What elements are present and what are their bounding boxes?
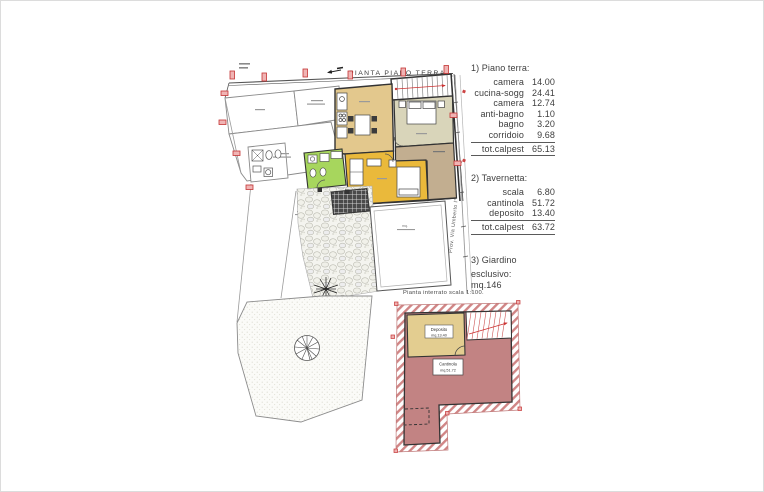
deposito-area: mq.13.40 xyxy=(431,334,447,338)
section-heading: 1) Piano terra: xyxy=(471,63,555,74)
basement-plan: Pianta interrato scala 1:100. Deposito m… xyxy=(391,290,522,453)
area-row: corridoio9.68 xyxy=(471,130,555,141)
terrace: mq. xyxy=(370,201,451,291)
kitchen-living-room xyxy=(335,84,394,154)
cantinola-label-box: Cantinola mq.51.72 xyxy=(433,359,463,375)
giardino-line: esclusivo: xyxy=(471,269,555,280)
tree-icon xyxy=(295,336,320,361)
area-row: deposito13.40 xyxy=(471,208,555,219)
deposito-label-box: Deposito mq.13.40 xyxy=(425,325,453,338)
area-total-row: tot.calpest63.72 xyxy=(471,220,555,235)
street-name-label: Prov. Via Umberto I° xyxy=(448,198,460,253)
area-table-section-tavernetta: 2) Tavernetta: scala6.80 cantinola51.72 … xyxy=(471,173,555,234)
area-row: camera14.00 xyxy=(471,77,555,88)
grate xyxy=(331,189,370,215)
deposito-label: Deposito xyxy=(431,327,448,332)
area-total-row: tot.calpest65.13 xyxy=(471,142,555,157)
basement-stair xyxy=(466,311,512,340)
area-row: cantinola51.72 xyxy=(471,198,555,209)
cobblestone-path xyxy=(297,186,379,298)
basement-title: Pianta interrato scala 1:100. xyxy=(403,290,484,296)
floor-plan-drawing: PIANTA PIANO TERRA Prov. Via Umberto I° xyxy=(1,1,764,492)
area-row: cucina-sogg24.41 xyxy=(471,88,555,99)
section-heading: 2) Tavernetta: xyxy=(471,173,555,184)
bathroom-green xyxy=(304,149,346,189)
architectural-drawing-sheet: PIANTA PIANO TERRA Prov. Via Umberto I° xyxy=(0,0,764,492)
cantinola-label: Cantinola xyxy=(439,362,457,367)
area-row: anti-bagno1.10 xyxy=(471,109,555,120)
area-row: scala6.80 xyxy=(471,187,555,198)
giardino-line: mq.146 xyxy=(471,280,555,291)
north-arrow-icon xyxy=(328,68,343,73)
revision-note-smudge xyxy=(239,63,250,69)
deposito-room: Deposito mq.13.40 xyxy=(407,313,465,357)
section-heading: 3) Giardino xyxy=(471,255,555,266)
bedroom-1 xyxy=(394,96,454,147)
terrace-note: mq. xyxy=(402,224,408,228)
cantinola-area: mq.51.72 xyxy=(440,369,456,373)
area-row: camera12.74 xyxy=(471,98,555,109)
area-table: 1) Piano terra: camera14.00 cucina-sogg2… xyxy=(471,63,555,291)
area-table-section-giardino: 3) Giardino esclusivo: mq.146 xyxy=(471,255,555,291)
area-table-section-piano-terra: 1) Piano terra: camera14.00 cucina-sogg2… xyxy=(471,63,555,156)
area-row: bagno3.20 xyxy=(471,119,555,130)
